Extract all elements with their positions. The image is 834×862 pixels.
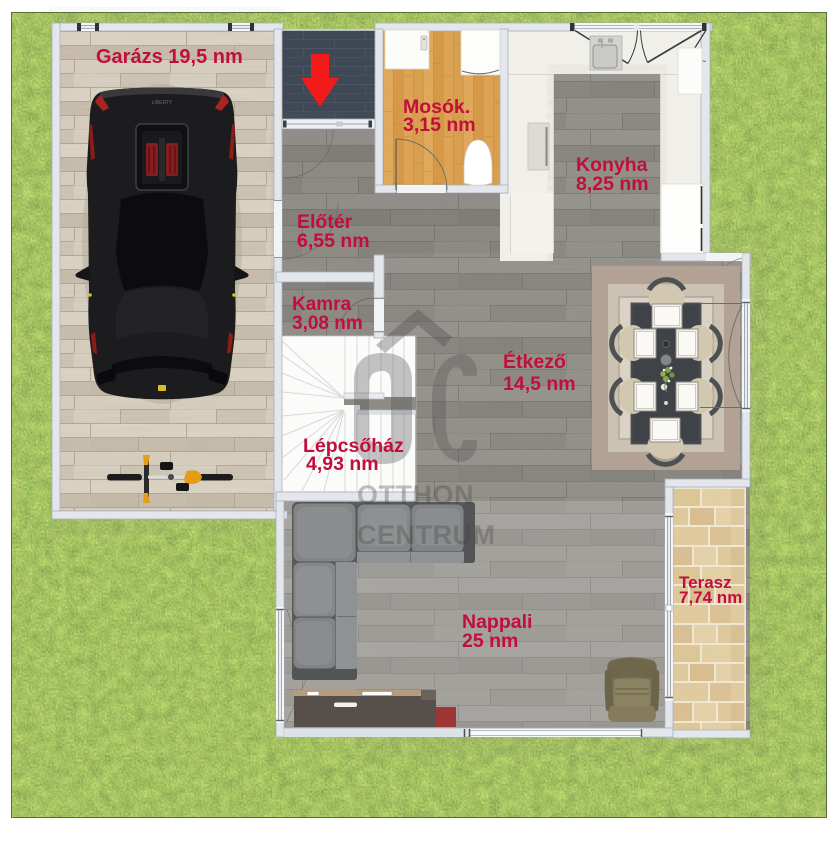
svg-text:Étkező: Étkező [503, 350, 566, 373]
svg-text:7,74 nm: 7,74 nm [679, 588, 742, 607]
svg-text:6,55 nm: 6,55 nm [297, 230, 370, 252]
svg-text:3,15 nm: 3,15 nm [403, 114, 476, 136]
svg-text:Garázs 19,5 nm: Garázs 19,5 nm [96, 46, 243, 68]
svg-text:3,08 nm: 3,08 nm [292, 313, 363, 334]
svg-text:Kamra: Kamra [292, 294, 352, 315]
svg-text:8,25 nm: 8,25 nm [576, 173, 649, 195]
svg-text:CENTRUM: CENTRUM [357, 520, 496, 550]
svg-text:OTTHON: OTTHON [357, 480, 474, 510]
svg-text:14,5 nm: 14,5 nm [503, 373, 576, 395]
svg-text:4,93 nm: 4,93 nm [306, 453, 379, 475]
svg-text:LIBERTY: LIBERTY [152, 100, 173, 106]
svg-text:25 nm: 25 nm [462, 630, 518, 652]
